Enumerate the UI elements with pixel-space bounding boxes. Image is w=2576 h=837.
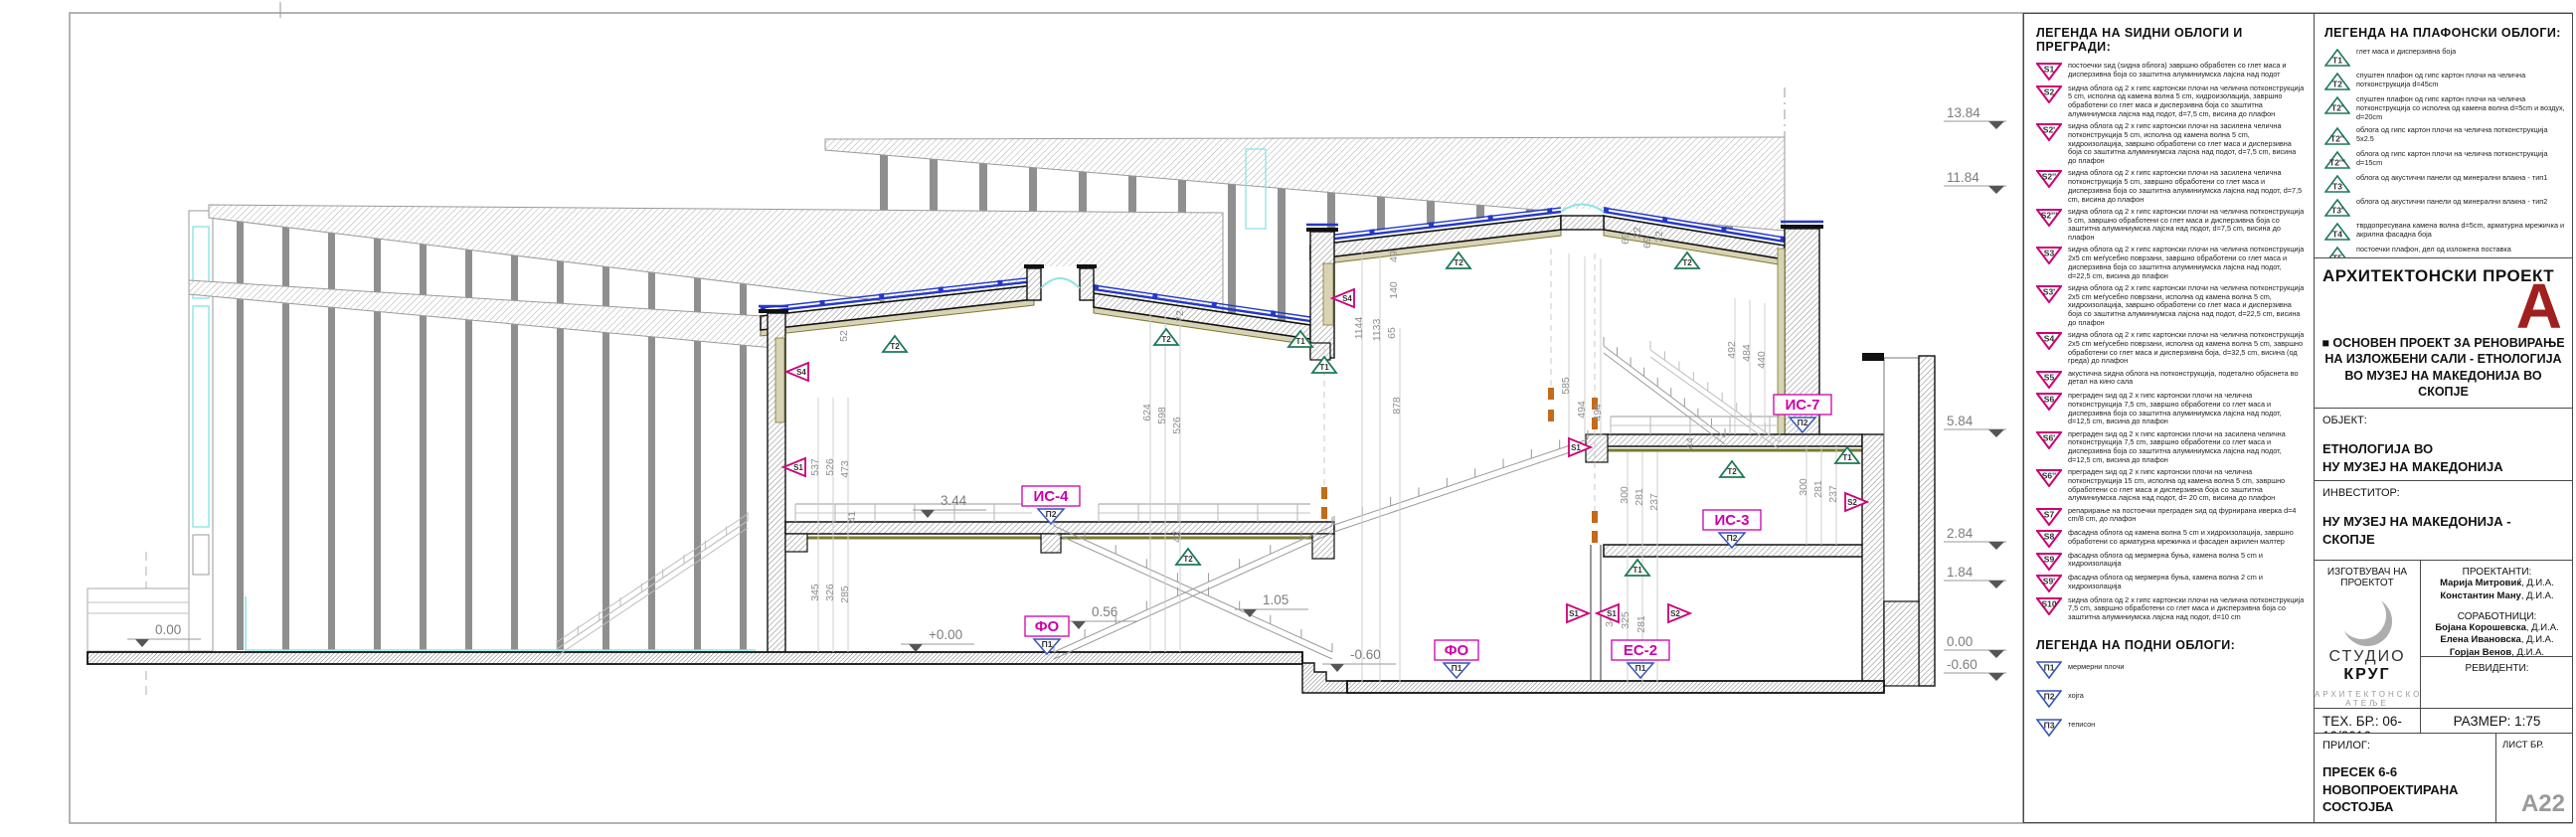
wall-marker-icon: S2''' — [2036, 209, 2062, 227]
objekt-value: ЕТНОЛОГИЈА ВО НУ МУЗЕЈ НА МАКЕДОНИЈА — [2315, 426, 2572, 475]
legend-item-text: мермерни плочи — [2068, 663, 2124, 672]
svg-text:П2: П2 — [2044, 691, 2055, 701]
margin-level-text: 2.84 — [1947, 526, 1974, 541]
dimension-text: 1144 — [1353, 317, 1365, 340]
floor-code: П2 — [1798, 418, 1808, 427]
legend-item-text: облога од акустични панели од минерални … — [2356, 198, 2547, 207]
list-br-label: ЛИСТ БР. — [2496, 734, 2573, 751]
dimension-text: 878 — [1391, 397, 1403, 415]
svg-text:П3: П3 — [2044, 720, 2055, 730]
ceiling-marker-icon: Т2''' — [2324, 151, 2350, 169]
dimension-text: 22 — [1631, 227, 1643, 239]
legend-item: Т2'' облога од гипс картон плочи на чели… — [2324, 126, 2566, 145]
dimension-text: 237 — [1648, 493, 1660, 511]
dimension-text: 69 — [1620, 233, 1631, 245]
svg-text:Т2'': Т2'' — [2330, 134, 2344, 144]
legend-item: S6'' преграден ѕид од 2 x гипс картонски… — [2036, 468, 2306, 503]
dimension-text: 237 — [1827, 485, 1839, 503]
dimension-text: 49 — [1388, 251, 1400, 262]
dimension-text: 585 — [1560, 377, 1572, 395]
legend-item: П3 теписон — [2036, 718, 2306, 737]
dimension-text: 281 — [1635, 615, 1647, 633]
dimension-text: 22 — [1653, 231, 1665, 243]
dimension-text: 440 — [1756, 351, 1768, 369]
floor-code: П1 — [1635, 663, 1646, 673]
svg-text:Т2: Т2 — [2332, 80, 2342, 89]
wall-marker-icon: S9' — [2036, 575, 2062, 592]
legend-item: Т3' облога од акустични панели од минера… — [2324, 198, 2566, 217]
dimension-text: 44 — [1684, 437, 1696, 449]
legend-item: S3 ѕидна облога од 2 x гипс картонски пл… — [2036, 246, 2306, 280]
svg-text:S4: S4 — [2044, 334, 2055, 344]
dimension-text: 494 — [1592, 404, 1604, 421]
margin-level-marks: 13.8411.845.842.841.840.00-0.60 — [1944, 105, 2006, 681]
dimension-text: 598 — [1156, 407, 1168, 424]
legend-item: S5 акустична ѕидна облога на потконструк… — [2036, 370, 2306, 389]
level-text: 3.44 — [941, 493, 967, 508]
designer-name: Марија Митровиќ, Д.И.А. — [2421, 578, 2573, 590]
legend-item: П2 хојга — [2036, 689, 2306, 708]
legend-item: П1 мермерни плочи — [2036, 660, 2306, 679]
finish-marker-code: T2 — [1682, 258, 1692, 267]
finish-marker-code: T1 — [1295, 337, 1305, 346]
dimension-text: 42 — [1171, 531, 1183, 543]
dimension-text: 281 — [1633, 488, 1645, 506]
svg-text:Т2': Т2' — [2331, 103, 2343, 113]
legend-item: S9 фасадна облога од мермерна буња, каме… — [2036, 552, 2306, 571]
finish-marker-code: S4 — [796, 368, 806, 377]
svg-text:S2: S2 — [2044, 86, 2055, 96]
margin-level-text: 11.84 — [1947, 170, 1979, 185]
wall-marker-icon: S9 — [2036, 553, 2062, 571]
room-label: ИС-7 — [1786, 397, 1820, 414]
revidenti-cell: РЕВИДЕНТИ: — [2421, 657, 2573, 709]
floor-code: П2 — [1727, 533, 1738, 543]
wall-marker-icon: S6' — [2036, 431, 2062, 449]
wall-marker-icon: S10 — [2036, 597, 2062, 615]
wall-marker-icon: S2' — [2036, 123, 2062, 141]
dimension-text: 285 — [839, 586, 851, 603]
legend-item-text: ѕидна облога од 2 x гипс картонски плочи… — [2068, 596, 2306, 622]
finish-marker-code: T2 — [1727, 467, 1737, 476]
atelje-label: АРХИТЕКТОНСКО АТЕЉЕ — [2315, 690, 2420, 708]
wall-marker-icon: S8 — [2036, 530, 2062, 548]
legend-item-text: теписон — [2068, 721, 2095, 730]
designers-cell: ПРОЕКТАНТИ: Марија Митровиќ, Д.И.А.Конст… — [2421, 561, 2573, 657]
legend-item-text: фасадна облога од мермерна буња, камена … — [2068, 574, 2306, 591]
wall-marker-icon: S3' — [2036, 285, 2062, 303]
finish-marker-code: T1 — [1319, 363, 1329, 372]
legend-item: S7 репарирање на постоечки преграден ѕид… — [2036, 507, 2306, 526]
dimension-text: 1133 — [1371, 319, 1383, 342]
legend-ceilings-list: Т1 глет маса и дисперзивна боја Т2 спушт… — [2324, 48, 2566, 264]
sorabotnici-label: СОРАБОТНИЦИ: — [2421, 603, 2573, 622]
margin-level-text: 1.84 — [1947, 565, 1974, 580]
svg-text:S3': S3' — [2043, 286, 2055, 296]
room-label: ИС-3 — [1715, 512, 1750, 529]
dimension-text: 325 — [1620, 611, 1631, 629]
dimension-text: 526 — [1171, 417, 1183, 434]
margin-level-text: 0.00 — [1947, 634, 1973, 649]
finish-marker-code: S4 — [1342, 294, 1352, 303]
svg-text:S2''': S2''' — [2041, 210, 2057, 220]
dimension-text: 41 — [846, 511, 858, 523]
legend-item: S2''' ѕидна облога од 2 x гипс картонски… — [2036, 208, 2306, 243]
floor-code: П1 — [1452, 663, 1462, 673]
finish-marker-code: T1 — [1842, 453, 1852, 462]
finish-marker-code: T2 — [890, 342, 900, 351]
author-cell: ИЗГОТВУВАЧ НА ПРОЕКТОТ СТУДИО КРУГ АРХИТ… — [2315, 561, 2421, 709]
svg-text:S9: S9 — [2044, 554, 2055, 564]
level-text: 0.56 — [1092, 604, 1117, 619]
finish-marker-code: S2 — [1670, 609, 1680, 618]
objekt-label: ОБЈЕКТ: — [2315, 409, 2572, 426]
room-label: ЕС-2 — [1624, 642, 1657, 659]
legend-item-text: ѕидна облога од 2 x гипс картонски плочи… — [2068, 246, 2306, 280]
svg-text:Т4: Т4 — [2332, 230, 2342, 240]
level-text: -0.60 — [1350, 647, 1381, 662]
dimension-text: 492 — [1726, 341, 1738, 359]
revidenti-label: РЕВИДЕНТИ: — [2421, 657, 2573, 674]
legend-item-text: тврдопресувана камена волна d=5cm, армат… — [2356, 222, 2566, 240]
legend-item-text: спуштен плафон од гипс картон плочи на ч… — [2356, 95, 2566, 121]
ceiling-marker-icon: Т4 — [2324, 223, 2350, 241]
dimension-text: 65 — [1386, 327, 1398, 339]
dimension-text: 473 — [839, 460, 851, 478]
legend-item: Т2 спуштен плафон од гипс картон плочи н… — [2324, 72, 2566, 90]
wall-marker-icon: S6'' — [2036, 469, 2062, 487]
legend-floors-title: ЛЕГЕНДА НА ПОДНИ ОБЛОГИ: — [2036, 638, 2306, 652]
wall-marker-icon: S5 — [2036, 371, 2062, 389]
dimension-text: 484 — [1741, 344, 1753, 362]
legend-item: Т2' спуштен плафон од гипс картон плочи … — [2324, 95, 2566, 121]
legend-floors-list: П1 мермерни плочи П2 хојга П3 теписон — [2036, 660, 2306, 737]
legend-item-text: глет маса и дисперзивна боја — [2356, 48, 2456, 57]
floor-code: П1 — [1042, 639, 1053, 649]
proektanti-list: Марија Митровиќ, Д.И.А.Константин Ману, … — [2421, 578, 2573, 603]
sheet-number: A22 — [2521, 790, 2565, 818]
project-letter: A — [2516, 274, 2562, 338]
floor-marker-icon: П3 — [2036, 719, 2062, 737]
studio-krug-logo-icon — [2342, 596, 2392, 646]
finish-marker-code: S1 — [793, 463, 803, 472]
investitor-panel: ИНВЕСТИТОР: НУ МУЗЕЈ НА МАКЕДОНИЈА - СКО… — [2314, 480, 2573, 561]
wall-marker-icon: S3 — [2036, 247, 2062, 264]
legend-item-text: ѕидна облога од 2 x гипс картонски плочи… — [2068, 208, 2306, 243]
legend-item-text: облога од гипс картон плочи на челична п… — [2356, 150, 2566, 168]
finish-marker-code: S2 — [1847, 498, 1857, 507]
dimension-text: 300 — [1798, 478, 1809, 496]
legend-item-text: постоечки ѕид (ѕидна облога) завршно обр… — [2068, 62, 2306, 80]
svg-text:S8: S8 — [2044, 532, 2055, 542]
finish-marker-code: S1 — [1571, 443, 1581, 452]
legend-item-text: преграден ѕид од 2 x гипс картонски плоч… — [2068, 392, 2306, 426]
dimension-text: 345 — [809, 584, 821, 601]
proektanti-label: ПРОЕКТАНТИ: — [2421, 561, 2573, 578]
project-type-panel: АРХИТЕКТОНСКИ ПРОЕКТ A ■ ОСНОВЕН ПРОЕКТ … — [2314, 257, 2573, 409]
svg-text:S7: S7 — [2044, 509, 2055, 519]
room-label: ФО — [1445, 642, 1469, 659]
legend-item: S9' фасадна облога од мермерна буња, кам… — [2036, 574, 2306, 592]
ceiling-marker-icon: Т2' — [2324, 96, 2350, 114]
wall-marker-icon: S6 — [2036, 393, 2062, 411]
svg-text:S1: S1 — [2044, 65, 2055, 75]
legend-item: Т3 облога од акустични панели од минерал… — [2324, 174, 2566, 193]
margin-level-text: 13.84 — [1947, 105, 1980, 120]
investitor-value: НУ МУЗЕЈ НА МАКЕДОНИЈА - СКОПЈЕ — [2315, 499, 2572, 548]
legend-item-text: ѕидна облога од 2 x гипс картонски плочи… — [2068, 284, 2306, 328]
collaborator-name: Бојана Корошевска, Д.И.А. — [2421, 622, 2573, 635]
razmer: РАЗМЕР: 1:75 — [2421, 709, 2573, 729]
legend-item: Т4 тврдопресувана камена волна d=5cm, ар… — [2324, 222, 2566, 241]
prilog-label: ПРИЛОГ: — [2315, 734, 2495, 752]
ceiling-marker-icon: Т3 — [2324, 175, 2350, 193]
wall-marker-icon: S1 — [2036, 63, 2062, 81]
wall-marker-icon: S4 — [2036, 332, 2062, 350]
legend-walls-panel: ЛЕГЕНДА НА ЅИДНИ ОБЛОГИ И ПРЕГРАДИ: S1 п… — [2023, 13, 2315, 823]
ceiling-marker-icon: Т2 — [2324, 73, 2350, 90]
legend-item-text: преграден ѕид од 2 x гипс картонски плоч… — [2068, 430, 2306, 465]
legend-item: Т1 глет маса и дисперзивна боја — [2324, 48, 2566, 67]
svg-text:Т3: Т3 — [2332, 182, 2342, 192]
collaborator-name: Елена Ивановска, Д.И.А. — [2421, 634, 2573, 647]
level-text: 0.00 — [155, 622, 181, 637]
legend-item-text: хојга — [2068, 692, 2084, 701]
legend-item: S10 ѕидна облога од 2 x гипс картонски п… — [2036, 596, 2306, 622]
legend-item: S2' ѕидна облога од 2 x гипс картонски п… — [2036, 122, 2306, 166]
level-text: 1.05 — [1263, 592, 1288, 607]
svg-text:S2': S2' — [2043, 125, 2055, 135]
legend-item-text: фасадна облога од камена волна 5 cm и хи… — [2068, 529, 2306, 547]
sorabotnici-list: Бојана Корошевска, Д.И.А.Елена Ивановска… — [2421, 622, 2573, 660]
legend-item: S6 преграден ѕид од 2 x гипс картонски п… — [2036, 392, 2306, 426]
svg-text:S9': S9' — [2043, 577, 2055, 586]
legend-item: S1 постоечки ѕид (ѕидна облога) завршно … — [2036, 62, 2306, 81]
legend-walls-title: ЛЕГЕНДА НА ЅИДНИ ОБЛОГИ И ПРЕГРАДИ: — [2036, 26, 2306, 54]
wall-marker-icon: S7 — [2036, 508, 2062, 526]
finish-marker-code: T2 — [1161, 335, 1171, 344]
floor-marker-icon: П2 — [2036, 690, 2062, 708]
legend-ceilings-panel: ЛЕГЕНДА НА ПЛАФОНСКИ ОБЛОГИ: Т1 глет мас… — [2314, 13, 2573, 258]
sheet-number-cell: ЛИСТ БР. A22 — [2496, 734, 2573, 822]
dimension-text: 494 — [1576, 401, 1588, 418]
legend-item: S4 ѕидна облога од 2 x гипс картонски пл… — [2036, 331, 2306, 366]
dimension-text: 300 — [1619, 486, 1631, 504]
floor-code: П2 — [1046, 509, 1057, 519]
ceiling-marker-icon: Т3' — [2324, 199, 2350, 217]
legend-item-text: фасадна облога од мермерна буња, камена … — [2068, 552, 2306, 570]
ceiling-marker-icon: Т2'' — [2324, 127, 2350, 145]
legend-item: Т2''' облога од гипс картон плочи на чел… — [2324, 150, 2566, 169]
project-title: ■ ОСНОВЕН ПРОЕКТ ЗА РЕНОВИРАЊЕ НА ИЗЛОЖБ… — [2318, 335, 2568, 400]
studio-name: СТУДИО КРУГ — [2315, 648, 2420, 684]
finish-marker-code: S1 — [1569, 609, 1579, 618]
dimension-text: 69 — [1641, 237, 1653, 249]
ceiling-marker-icon: Т1 — [2324, 49, 2350, 67]
margin-level-text: 5.84 — [1947, 414, 1974, 428]
legend-item: S6' преграден ѕид од 2 x гипс картонски … — [2036, 430, 2306, 465]
wall-marker-icon: S2'' — [2036, 170, 2062, 188]
drawing-sheet: 5375264733453262856245985261144113387858… — [0, 0, 2576, 837]
legend-item-text: ѕидна облога од 2 x гипс картонски плочи… — [2068, 331, 2306, 366]
room-label: ИС-4 — [1034, 488, 1070, 505]
svg-text:S6: S6 — [2044, 395, 2055, 405]
legend-item-text: облога од гипс картон плочи на челична п… — [2356, 126, 2566, 144]
margin-level-text: -0.60 — [1947, 657, 1977, 672]
svg-text:Т1: Т1 — [2332, 56, 2342, 66]
dimension-text: 52 — [838, 330, 850, 342]
svg-text:S3: S3 — [2044, 249, 2055, 258]
svg-text:П1: П1 — [2044, 662, 2055, 672]
legend-item: S3' ѕидна облога од 2 x гипс картонски п… — [2036, 284, 2306, 328]
svg-text:S5: S5 — [2044, 372, 2055, 382]
room-label: ФО — [1035, 618, 1060, 635]
svg-text:Т3': Т3' — [2331, 206, 2343, 216]
izgotvuvac-label: ИЗГОТВУВАЧ НА ПРОЕКТОТ — [2315, 561, 2420, 588]
technical-row: ТЕХ. БР.: 06-10/2016 РАЗМЕР: 1:75 — [2314, 708, 2573, 734]
svg-text:S2'': S2'' — [2042, 172, 2056, 182]
dimension-text: 281 — [1812, 480, 1824, 498]
prilog-panel: ПРИЛОГ: ПРЕСЕК 6-6 НОВОПРОЕКТИРАНА СОСТО… — [2314, 733, 2573, 823]
legend-item-text: ѕидна облога од 2 x гипс картонски плочи… — [2068, 169, 2306, 204]
legend-item: S8 фасадна облога од камена волна 5 cm и… — [2036, 529, 2306, 548]
finish-marker-code: T2 — [1454, 258, 1463, 267]
svg-text:S6'': S6'' — [2042, 471, 2056, 481]
svg-text:Т2''': Т2''' — [2329, 158, 2345, 168]
legend-walls-list: S1 постоечки ѕид (ѕидна облога) завршно … — [2036, 62, 2306, 622]
legend-item-text: преграден ѕид од 2 x гипс картонски плоч… — [2068, 468, 2306, 503]
dimension-text: 526 — [824, 458, 836, 476]
dimension-text: 624 — [1141, 404, 1153, 421]
finish-marker-code: T2 — [1183, 555, 1193, 564]
dimension-text: 326 — [824, 584, 836, 601]
svg-text:S6': S6' — [2043, 432, 2055, 442]
dimension-text: 72 — [1174, 310, 1186, 322]
legend-item: S2 ѕидна облога од 2 x гипс картонски пл… — [2036, 84, 2306, 119]
finish-marker-code: T1 — [1632, 566, 1642, 575]
legend-ceilings-title: ЛЕГЕНДА НА ПЛАФОНСКИ ОБЛОГИ: — [2324, 26, 2566, 40]
legend-item-text: репарирање на постоечки преграден ѕид од… — [2068, 507, 2306, 525]
team-panel: ИЗГОТВУВАЧ НА ПРОЕКТОТ СТУДИО КРУГ АРХИТ… — [2314, 560, 2573, 709]
floor-marker-icon: П1 — [2036, 661, 2062, 679]
legend-item-text: акустична ѕидна облога на потконструкциј… — [2068, 370, 2306, 388]
legend-item: S2'' ѕидна облога од 2 x гипс картонски … — [2036, 169, 2306, 204]
objekt-panel: ОБЈЕКТ: ЕТНОЛОГИЈА ВО НУ МУЗЕЈ НА МАКЕДО… — [2314, 408, 2573, 481]
dimension-text: 140 — [1388, 281, 1400, 299]
level-text: +0.00 — [929, 627, 962, 642]
dimension-text: 537 — [809, 458, 821, 476]
legend-item-text: ѕидна облога од 2 x гипс картонски плочи… — [2068, 84, 2306, 119]
designer-name: Константин Ману, Д.И.А. — [2421, 590, 2573, 603]
investitor-label: ИНВЕСТИТОР: — [2315, 481, 2572, 499]
legend-item-text: облога од акустични панели од минерални … — [2356, 174, 2547, 183]
svg-text:S10: S10 — [2041, 598, 2056, 608]
legend-item-text: постоечки плафон, дел од изложена постав… — [2356, 246, 2511, 254]
legend-item-text: спуштен плафон од гипс картон плочи на ч… — [2356, 72, 2566, 89]
legend-item-text: ѕидна облога од 2 x гипс картонски плочи… — [2068, 122, 2306, 166]
finish-marker-code: S1 — [1607, 609, 1617, 618]
wall-marker-icon: S2 — [2036, 85, 2062, 103]
prilog-value: ПРЕСЕК 6-6 НОВОПРОЕКТИРАНА СОСТОЈБА — [2315, 752, 2495, 816]
